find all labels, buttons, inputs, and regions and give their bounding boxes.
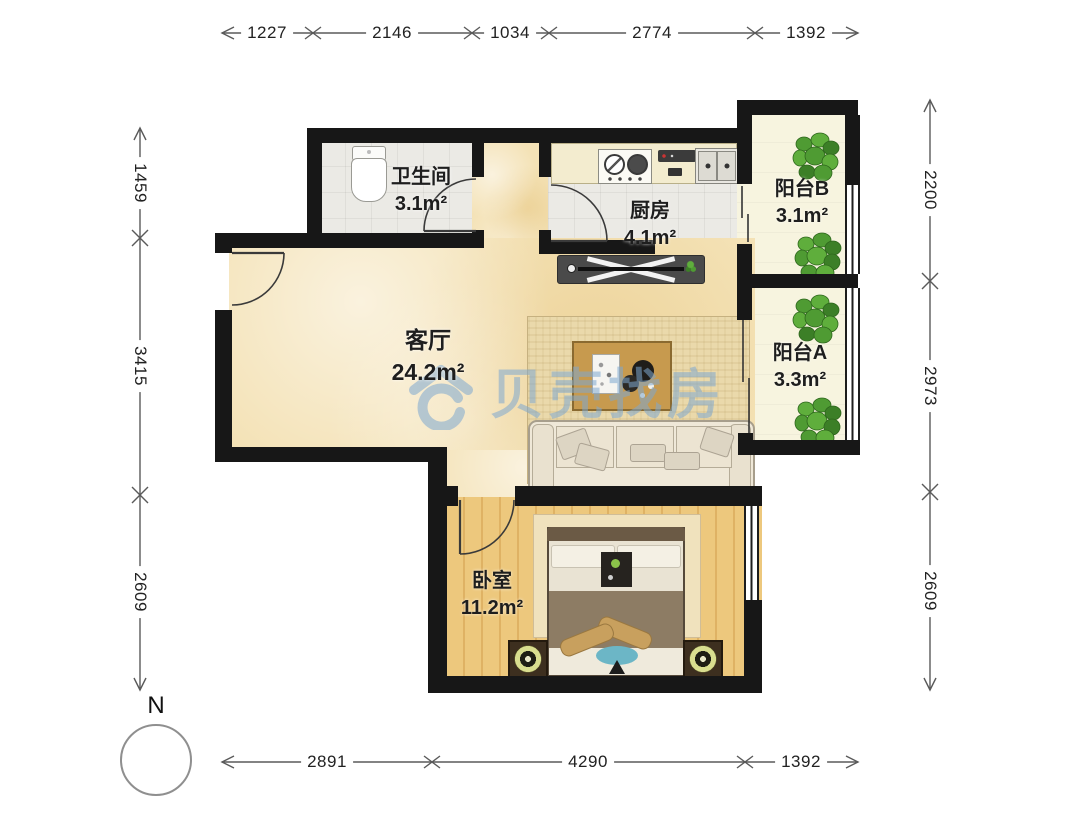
window (845, 288, 860, 440)
bed-headboard (547, 527, 685, 541)
wall (738, 433, 753, 455)
room-area: 4.1m² (624, 225, 676, 252)
bedside-lamp-icon (515, 646, 542, 673)
room-name: 卧室 (461, 568, 523, 595)
burner-icon (604, 154, 625, 175)
dim-left-3: 2609 (130, 566, 150, 618)
double-sink (695, 148, 739, 184)
room-name: 厨房 (624, 198, 676, 225)
wall (515, 486, 762, 506)
room-area: 3.3m² (773, 367, 827, 394)
nightstand (683, 640, 723, 678)
table-bar (578, 267, 684, 271)
dim-bottom-3: 1392 (775, 752, 827, 772)
room-area: 24.2m² (392, 356, 465, 388)
dim-bottom-2: 4290 (562, 752, 614, 772)
wall (307, 128, 322, 248)
sink-basin (698, 151, 717, 181)
wall (539, 143, 551, 177)
room-label-living-room: 客厅 24.2m² (392, 324, 465, 388)
wall (307, 128, 752, 143)
floor-plan-canvas: 贝壳找房 卫生间 3.1m² 厨房 4.1m² 阳台B 3.1m² 阳台A 3.… (0, 0, 1080, 826)
toilet (351, 146, 387, 202)
decor-dot (640, 393, 645, 398)
dim-left-1: 1459 (130, 157, 150, 209)
room-name: 阳台A (773, 340, 827, 367)
stove-knobs (605, 177, 645, 181)
dim-top-2: 2146 (366, 23, 418, 43)
table-plant (685, 260, 696, 273)
room-area: 11.2m² (461, 595, 523, 622)
kitchen-appliance-small (668, 168, 682, 176)
kitchen-appliance (658, 150, 696, 162)
bed (547, 527, 685, 677)
sofa-pillow (664, 452, 700, 470)
room-name: 阳台B (775, 176, 829, 203)
dining-table (557, 255, 705, 284)
room-label-bedroom: 卧室 11.2m² (461, 568, 523, 622)
room-area: 3.1m² (391, 191, 451, 218)
plant-icon (790, 292, 842, 346)
stove (598, 149, 652, 184)
decor-dot (648, 383, 654, 389)
dim-right-3: 2609 (920, 565, 940, 617)
room-label-balcony-b: 阳台B 3.1m² (775, 176, 829, 230)
room-label-balcony-a: 阳台A 3.3m² (773, 340, 827, 394)
wall (215, 233, 472, 248)
room-name: 客厅 (392, 324, 465, 356)
burner-icon (627, 154, 648, 175)
north-label: N (147, 692, 164, 720)
vase (622, 375, 639, 392)
kitchen-counter (551, 143, 737, 184)
wall (737, 100, 858, 115)
bed-tray (601, 552, 632, 587)
dim-left-2: 3415 (130, 340, 150, 392)
window (845, 185, 860, 274)
wall (472, 230, 484, 248)
dim-top-3: 1034 (484, 23, 536, 43)
nightstand (508, 640, 548, 678)
room-label-bathroom: 卫生间 3.1m² (391, 164, 451, 218)
wall (428, 676, 762, 693)
dim-top-5: 1392 (780, 23, 832, 43)
compass-circle (120, 724, 192, 796)
table-lamp (567, 264, 576, 273)
bedside-lamp-icon (690, 646, 717, 673)
sofa-pillow (630, 444, 666, 462)
wall (737, 115, 752, 184)
coffee-table-tray (592, 354, 620, 394)
wall (428, 447, 447, 693)
sink-basin (717, 151, 736, 181)
wall (845, 115, 860, 185)
room-label-kitchen: 厨房 4.1m² (624, 198, 676, 252)
wall (742, 274, 858, 288)
wall (472, 143, 484, 177)
dim-top-4: 2774 (626, 23, 678, 43)
dim-bottom-1: 2891 (301, 752, 353, 772)
dim-right-1: 2200 (920, 164, 940, 216)
room-area: 3.1m² (775, 203, 829, 230)
window (744, 506, 759, 600)
bed-foot-wedge (609, 660, 625, 674)
dim-right-2: 2973 (920, 360, 940, 412)
toilet-bowl (351, 158, 387, 202)
wall (447, 486, 458, 506)
wall (215, 233, 232, 253)
wall (215, 447, 447, 462)
coffee-table (572, 341, 672, 411)
wall (738, 440, 860, 455)
wall (215, 310, 232, 462)
dim-top-1: 1227 (241, 23, 293, 43)
sofa-armrest (532, 424, 554, 493)
room-name: 卫生间 (391, 164, 451, 191)
